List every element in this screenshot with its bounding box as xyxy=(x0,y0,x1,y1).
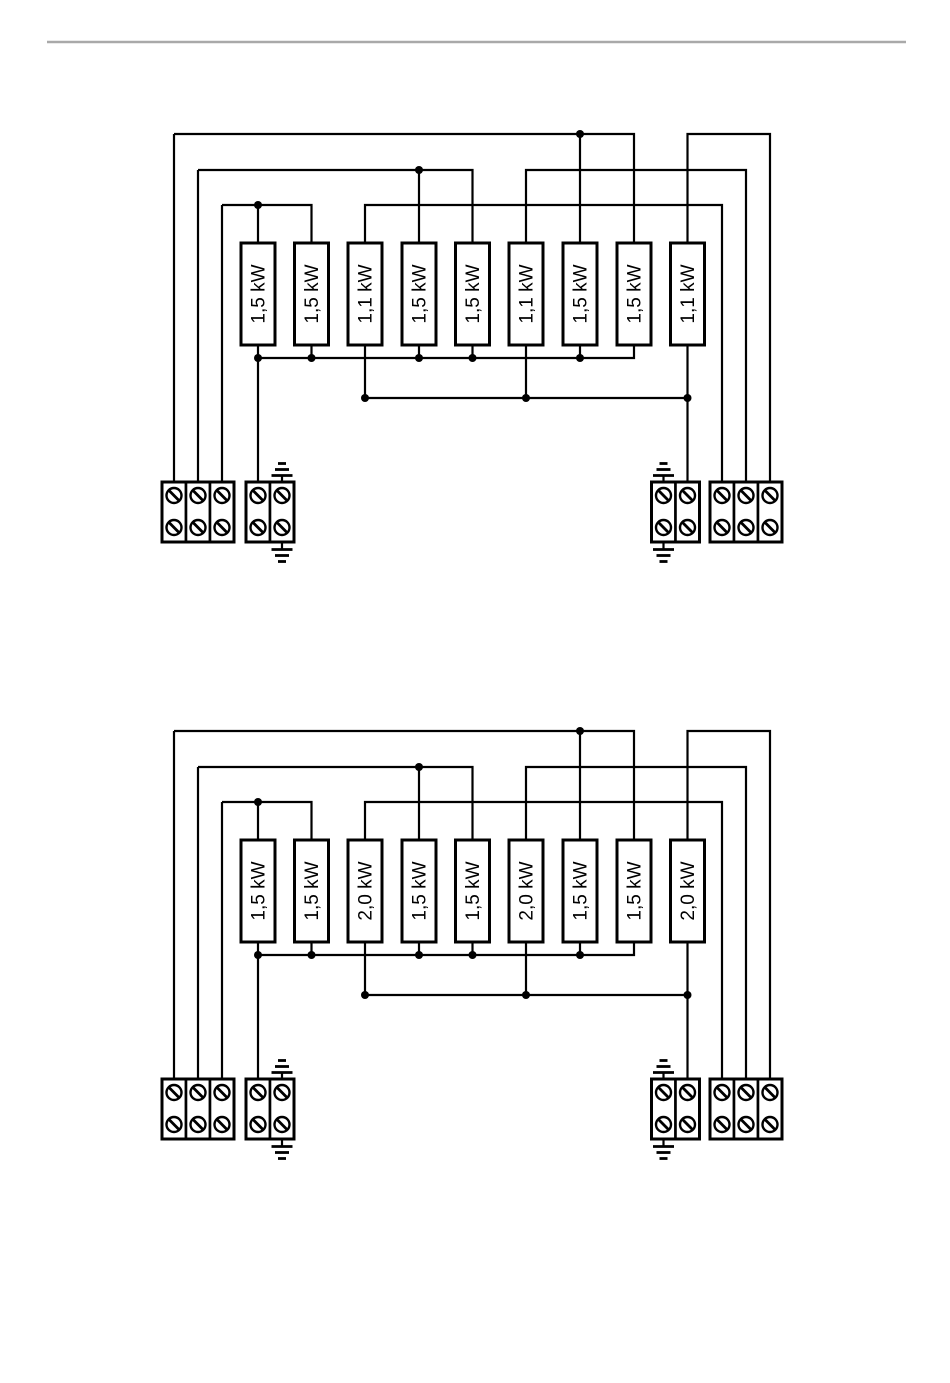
element-power-label: 1,5 kW xyxy=(302,861,323,920)
wiring-diagram-1: 1,5 kW 1,5 kW 1,1 kW 1,5 kW 1,5 kW 1,1 k… xyxy=(162,130,782,562)
element-power-label: 1,5 kW xyxy=(410,861,431,920)
element-power-label: 1,5 kW xyxy=(463,861,484,920)
element-power-label: 1,1 kW xyxy=(517,264,538,323)
element-power-label: 1,5 kW xyxy=(625,264,646,323)
element-power-label: 2,0 kW xyxy=(678,861,699,920)
element-power-label: 1,5 kW xyxy=(571,861,592,920)
element-power-label: 1,1 kW xyxy=(678,264,699,323)
page-canvas: 1,5 kW 1,5 kW 1,1 kW 1,5 kW 1,5 kW 1,1 k… xyxy=(0,0,950,1383)
element-power-label: 1,5 kW xyxy=(625,861,646,920)
element-power-label: 1,5 kW xyxy=(410,264,431,323)
element-power-label: 2,0 kW xyxy=(356,861,377,920)
element-power-label: 1,1 kW xyxy=(356,264,377,323)
element-power-label: 1,5 kW xyxy=(571,264,592,323)
element-power-label: 1,5 kW xyxy=(249,264,270,323)
document-page: 1,5 kW 1,5 kW 1,1 kW 1,5 kW 1,5 kW 1,1 k… xyxy=(0,0,950,1383)
wiring-diagram-2: 1,5 kW 1,5 kW 2,0 kW 1,5 kW 1,5 kW 2,0 k… xyxy=(162,727,782,1159)
element-power-label: 2,0 kW xyxy=(517,861,538,920)
element-power-label: 1,5 kW xyxy=(249,861,270,920)
element-power-label: 1,5 kW xyxy=(463,264,484,323)
element-power-label: 1,5 kW xyxy=(302,264,323,323)
